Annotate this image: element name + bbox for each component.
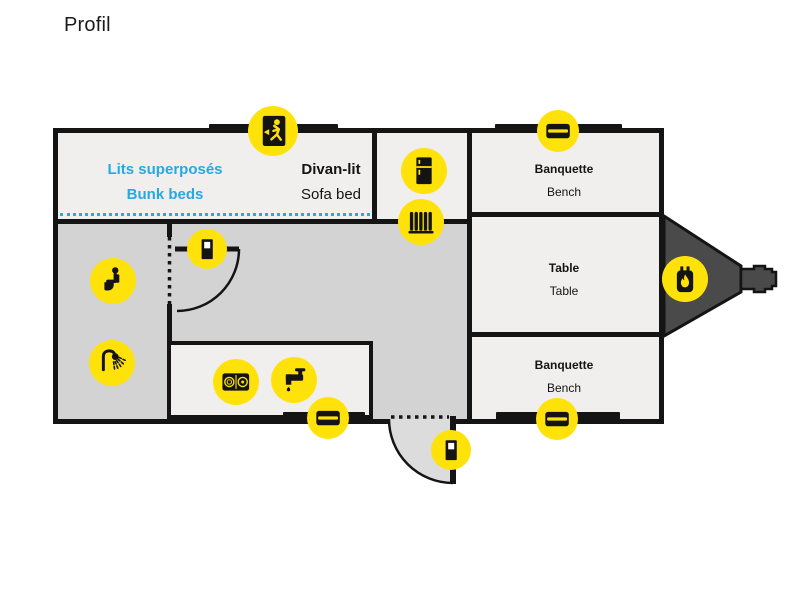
propane-tank-icon	[662, 256, 708, 302]
room-dinette-table: Table Table	[479, 257, 649, 303]
room-bench-rear: Banquette Bench	[479, 354, 649, 400]
bench-front-label-en: Bench	[479, 181, 649, 204]
stove-icon	[213, 359, 259, 405]
bunk-beds-label-fr: Lits superposés	[80, 157, 250, 182]
wall-dinette-left	[467, 133, 472, 419]
wall-bench-front	[467, 212, 659, 217]
sofa-bed-label-fr: Divan-lit	[246, 157, 416, 182]
emergency-exit-window-icon	[248, 106, 298, 156]
room-bunk-beds: Lits superposés Bunk beds	[80, 157, 250, 207]
interior-door-icon	[187, 229, 227, 269]
floorplan-canvas: Profil	[0, 0, 800, 600]
wall-bathroom-top	[167, 219, 172, 237]
storage-icon-top	[537, 110, 579, 152]
bunk-fold-line	[60, 213, 370, 216]
faucet-icon	[271, 357, 317, 403]
storage-icon-bottom-right	[536, 398, 578, 440]
room-bench-front: Banquette Bench	[479, 158, 649, 204]
wall-bench-rear	[467, 332, 659, 337]
sofa-bed-label-en: Sofa bed	[246, 182, 416, 207]
bench-rear-label-en: Bench	[479, 377, 649, 400]
bunk-beds-label-en: Bunk beds	[80, 182, 250, 207]
bench-front-label-fr: Banquette	[479, 158, 649, 181]
room-sofa-bed: Divan-lit Sofa bed	[246, 157, 416, 207]
bench-rear-label-fr: Banquette	[479, 354, 649, 377]
hitch-coupler	[741, 266, 776, 292]
storage-icon-bottom-left	[307, 397, 349, 439]
entry-door-icon	[431, 430, 471, 470]
toilet-icon	[90, 258, 136, 304]
table-label-fr: Table	[479, 257, 649, 280]
shower-icon	[89, 340, 135, 386]
table-label-en: Table	[479, 280, 649, 303]
page-title: Profil	[64, 14, 111, 37]
